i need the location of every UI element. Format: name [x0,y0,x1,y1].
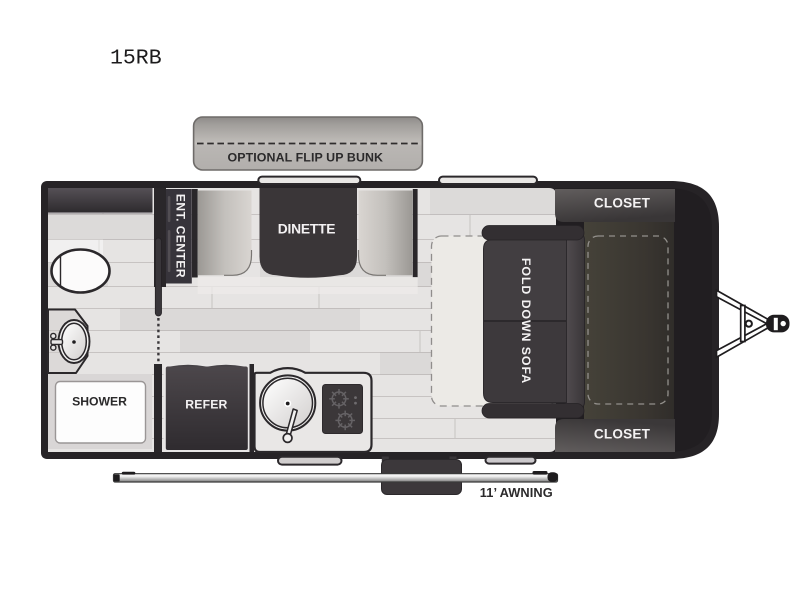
svg-text:11’ AWNING: 11’ AWNING [480,485,553,500]
svg-text:FOLD DOWN SOFA: FOLD DOWN SOFA [519,258,533,384]
svg-text:CLOSET: CLOSET [594,427,651,442]
svg-text:15RB: 15RB [110,47,162,71]
svg-text:REFER: REFER [185,398,227,412]
svg-text:DINETTE: DINETTE [278,222,336,237]
svg-text:CLOSET: CLOSET [594,196,651,211]
svg-text:ENT. CENTER: ENT. CENTER [173,194,187,278]
svg-text:OPTIONAL FLIP UP BUNK: OPTIONAL FLIP UP BUNK [227,151,383,165]
svg-text:SHOWER: SHOWER [72,395,127,409]
